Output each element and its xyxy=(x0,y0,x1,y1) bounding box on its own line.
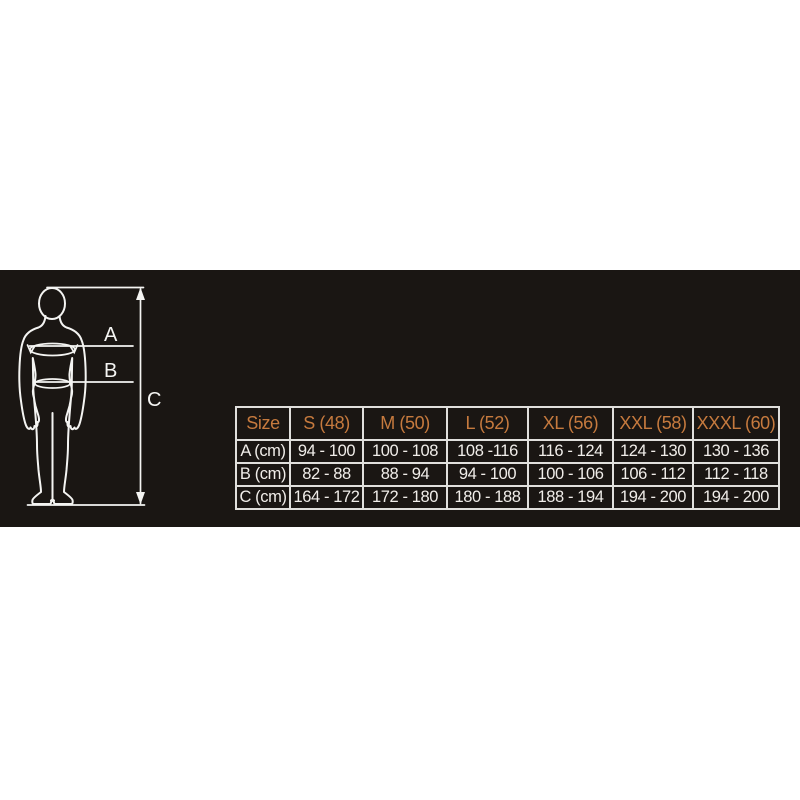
size-cell: 172 - 180 xyxy=(363,486,447,509)
size-cell: 88 - 94 xyxy=(363,463,447,486)
measurement-label-c: C xyxy=(147,389,161,411)
size-table-header-row: Size S (48) M (50) L (52) XL (56) XXL (5… xyxy=(236,407,779,440)
size-cell: 124 - 130 xyxy=(613,440,693,463)
size-cell: 164 - 172 xyxy=(290,486,363,509)
measurement-label-a: A xyxy=(104,324,118,346)
size-cell: 116 - 124 xyxy=(528,440,613,463)
size-cell: 112 - 118 xyxy=(693,463,779,486)
column-header-s: S (48) xyxy=(290,407,363,440)
table-row-a: A (cm) 94 - 100 100 - 108 108 -116 116 -… xyxy=(236,440,779,463)
column-header-xxxl: XXXL (60) xyxy=(693,407,779,440)
column-header-xl: XL (56) xyxy=(528,407,613,440)
size-cell: 100 - 108 xyxy=(363,440,447,463)
row-header-b: B (cm) xyxy=(236,463,290,486)
table-row-c: C (cm) 164 - 172 172 - 180 180 - 188 188… xyxy=(236,486,779,509)
column-header-size: Size xyxy=(236,407,290,440)
figure-waist-girth xyxy=(35,379,70,388)
size-cell: 180 - 188 xyxy=(447,486,528,509)
row-header-c: C (cm) xyxy=(236,486,290,509)
size-cell: 94 - 100 xyxy=(290,440,363,463)
figure-head xyxy=(39,288,65,319)
size-cell: 106 - 112 xyxy=(613,463,693,486)
arrowhead-down-icon xyxy=(136,492,145,505)
measurement-label-b: B xyxy=(104,360,117,382)
size-chart-band: A B C Size S (48) M (50) L (52) XL (56) … xyxy=(0,270,800,527)
column-header-m: M (50) xyxy=(363,407,447,440)
size-cell: 100 - 106 xyxy=(528,463,613,486)
column-header-xxl: XXL (58) xyxy=(613,407,693,440)
size-cell: 94 - 100 xyxy=(447,463,528,486)
size-cell: 82 - 88 xyxy=(290,463,363,486)
column-header-l: L (52) xyxy=(447,407,528,440)
size-cell: 194 - 200 xyxy=(693,486,779,509)
size-table: Size S (48) M (50) L (52) XL (56) XXL (5… xyxy=(235,406,780,510)
table-row-b: B (cm) 82 - 88 88 - 94 94 - 100 100 - 10… xyxy=(236,463,779,486)
size-cell: 188 - 194 xyxy=(528,486,613,509)
size-cell: 130 - 136 xyxy=(693,440,779,463)
body-measurement-diagram: A B C xyxy=(0,270,180,527)
size-cell: 108 -116 xyxy=(447,440,528,463)
size-cell: 194 - 200 xyxy=(613,486,693,509)
page: A B C Size S (48) M (50) L (52) XL (56) … xyxy=(0,0,800,800)
arrowhead-up-icon xyxy=(136,288,145,301)
row-header-a: A (cm) xyxy=(236,440,290,463)
